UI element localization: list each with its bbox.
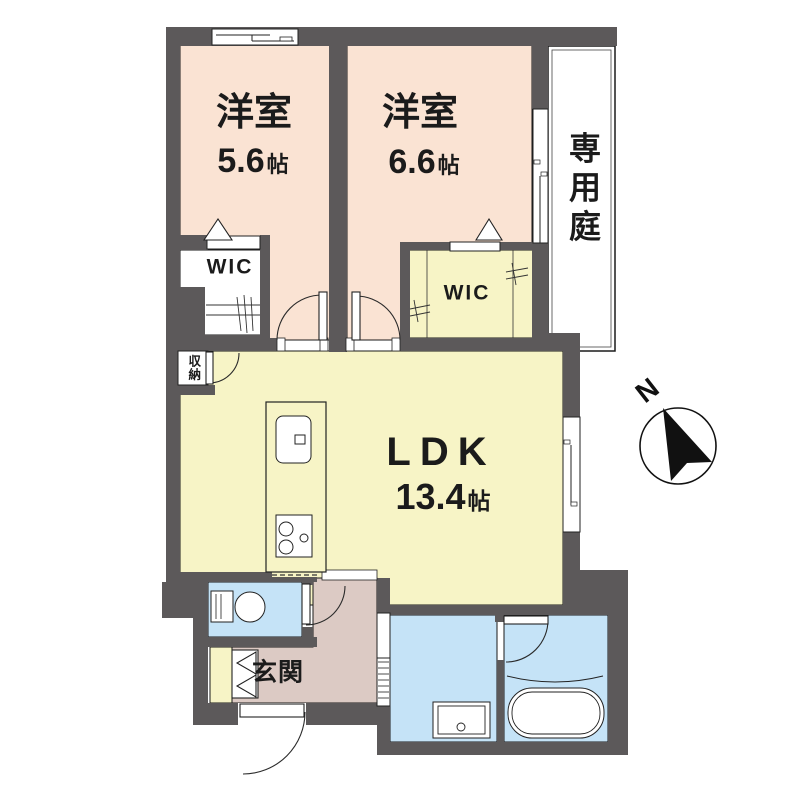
bedroom-right-size: 6.6帖 <box>388 145 459 179</box>
ldk-floor <box>180 351 563 605</box>
bedroom-left-size-unit: 帖 <box>267 154 289 176</box>
kitchen-counter <box>266 402 326 575</box>
wall-bottom-bath <box>377 742 628 755</box>
entrance-label: 玄関 <box>252 661 304 686</box>
wall-ldk-east-upper <box>563 351 580 417</box>
storage-label: 収納 <box>187 355 200 382</box>
wall-below-storage <box>180 385 215 395</box>
wall-left-step-block <box>162 582 208 618</box>
compass-north-label: N <box>630 372 665 409</box>
floor-plan-canvas: N 洋室 5.6帖 洋室 6.6帖 専用庭 WIC WIC 収納 LDK 13.… <box>0 0 800 800</box>
wall-wic-left-right <box>260 235 270 351</box>
ldk-hall-passage <box>322 570 377 580</box>
wall-wic-right-top-a <box>408 242 450 250</box>
window-garden <box>533 109 548 243</box>
wall-washroom-top <box>377 605 608 615</box>
window-ldk-east <box>563 417 580 532</box>
wic-left-label: WIC <box>207 257 254 278</box>
wall-wic-left-top <box>180 235 208 250</box>
ldk-name: LDK <box>386 432 495 472</box>
sliding-door-washroom <box>377 613 390 706</box>
bedroom-left-size-value: 5.6 <box>217 144 264 178</box>
door-jamb <box>392 338 400 351</box>
wall-garden-bottom <box>533 333 580 351</box>
private-garden-label: 専用庭 <box>567 132 599 249</box>
wic-right-opening <box>450 242 500 251</box>
wall-wic-right-top-b <box>500 242 533 250</box>
wall-wic-right-bottom <box>400 338 533 351</box>
wall-bedroom-right-upper <box>532 46 548 109</box>
bedroom-right-name: 洋室 <box>382 94 458 132</box>
bedroom-right-size-value: 6.6 <box>388 145 435 179</box>
shoe-cabinet <box>210 647 232 703</box>
vanity-unit <box>433 702 490 738</box>
wall-toilet-top-a <box>166 572 272 582</box>
door-entrance <box>240 704 305 774</box>
bedroom-right-size-unit: 帖 <box>438 155 460 177</box>
wall-toilet-right-b <box>302 627 313 637</box>
wall-wash-bath-divider <box>497 660 504 742</box>
door-jamb <box>277 338 285 351</box>
wall-wic-left-block <box>180 287 205 335</box>
ldk-size-unit: 帖 <box>468 490 491 513</box>
wall-toilet-bottom <box>193 637 317 647</box>
bedroom-left-size: 5.6帖 <box>217 144 288 178</box>
wall-below-wic-left <box>166 335 270 351</box>
kitchen-tap <box>295 435 305 444</box>
wall-between-bedrooms <box>329 46 347 352</box>
wic-right-label: WIC <box>444 283 491 304</box>
wall-bath-right <box>608 615 628 755</box>
window-north <box>212 29 298 45</box>
kitchen-stove <box>276 515 312 557</box>
wall-wic-right-left <box>400 242 410 351</box>
wall-left <box>166 27 180 588</box>
ldk-size-value: 13.4 <box>395 479 465 515</box>
kitchen-sink <box>276 416 311 463</box>
ldk-size: 13.4帖 <box>395 479 490 515</box>
wall-wash-bath-stub <box>495 615 504 622</box>
bedroom-left-name: 洋室 <box>216 94 292 132</box>
compass: N <box>630 372 716 484</box>
